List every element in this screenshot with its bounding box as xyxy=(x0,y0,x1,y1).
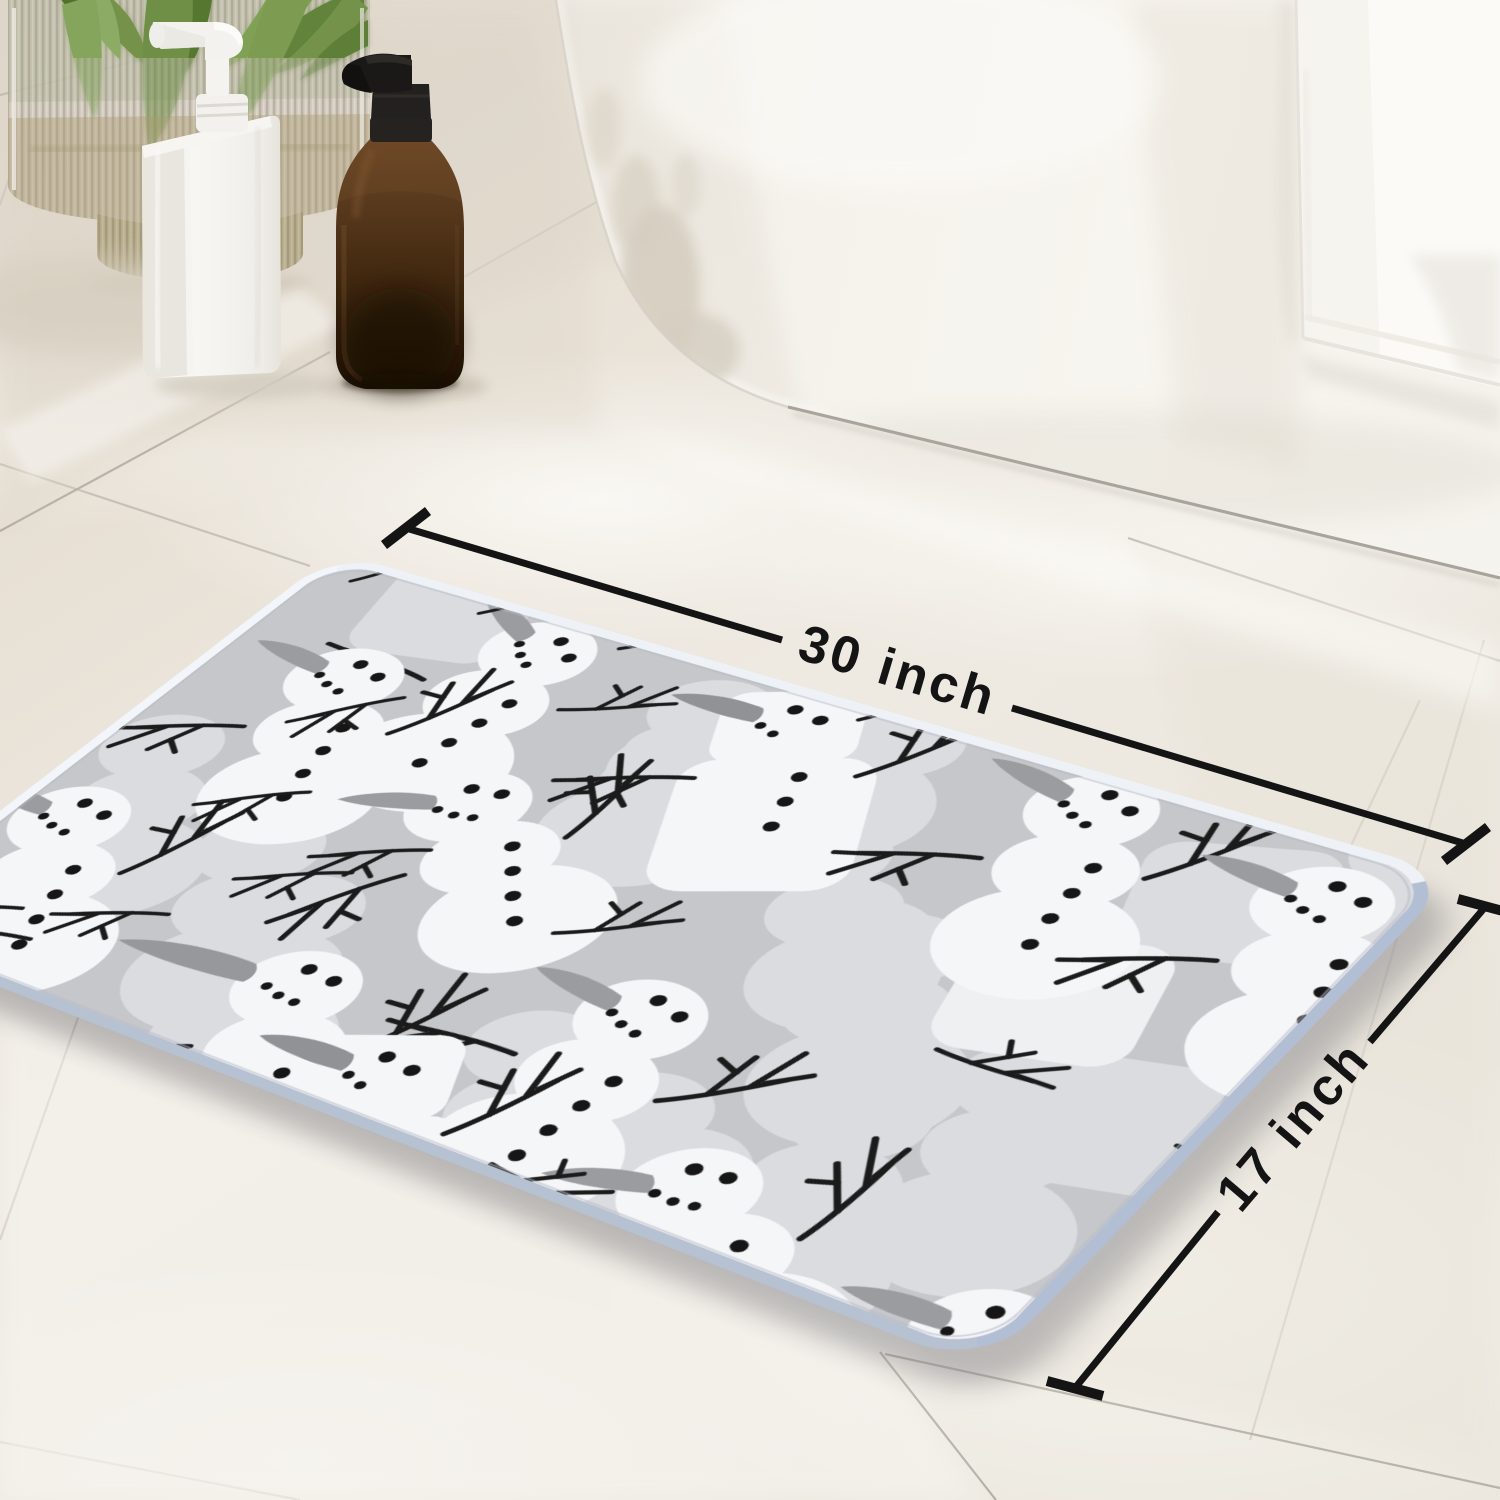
svg-text:30 inch: 30 inch xyxy=(792,614,1004,728)
svg-text:17 inch: 17 inch xyxy=(1205,1030,1381,1223)
